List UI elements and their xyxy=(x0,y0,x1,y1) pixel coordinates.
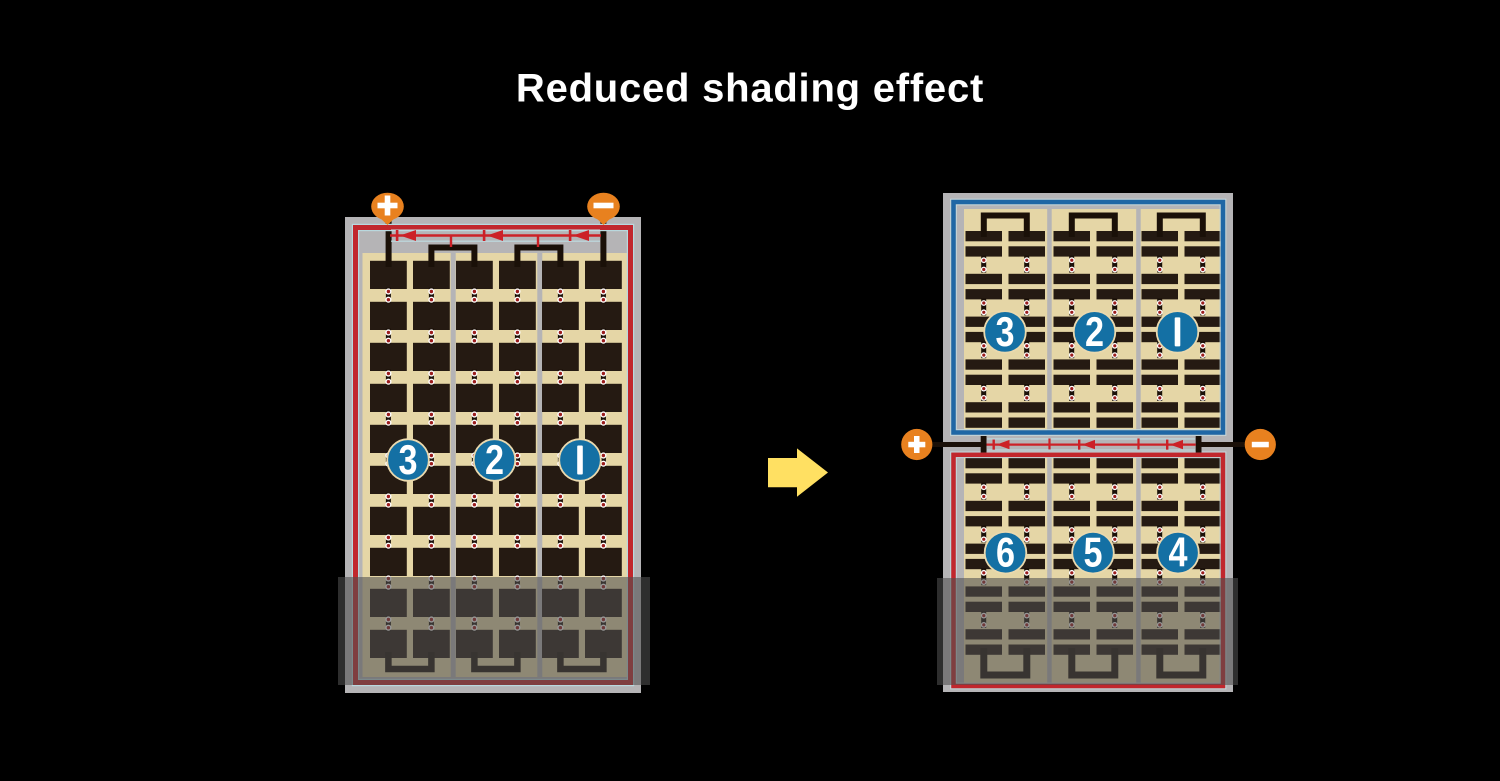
svg-text:Reduced shading effect: Reduced shading effect xyxy=(516,67,984,111)
svg-text:2: 2 xyxy=(1085,308,1104,355)
svg-text:5: 5 xyxy=(1084,529,1103,576)
svg-text:3: 3 xyxy=(996,308,1015,355)
svg-text:4: 4 xyxy=(1169,529,1189,576)
svg-text:2: 2 xyxy=(485,436,504,483)
svg-text:6: 6 xyxy=(996,529,1015,576)
svg-text:3: 3 xyxy=(399,436,418,483)
